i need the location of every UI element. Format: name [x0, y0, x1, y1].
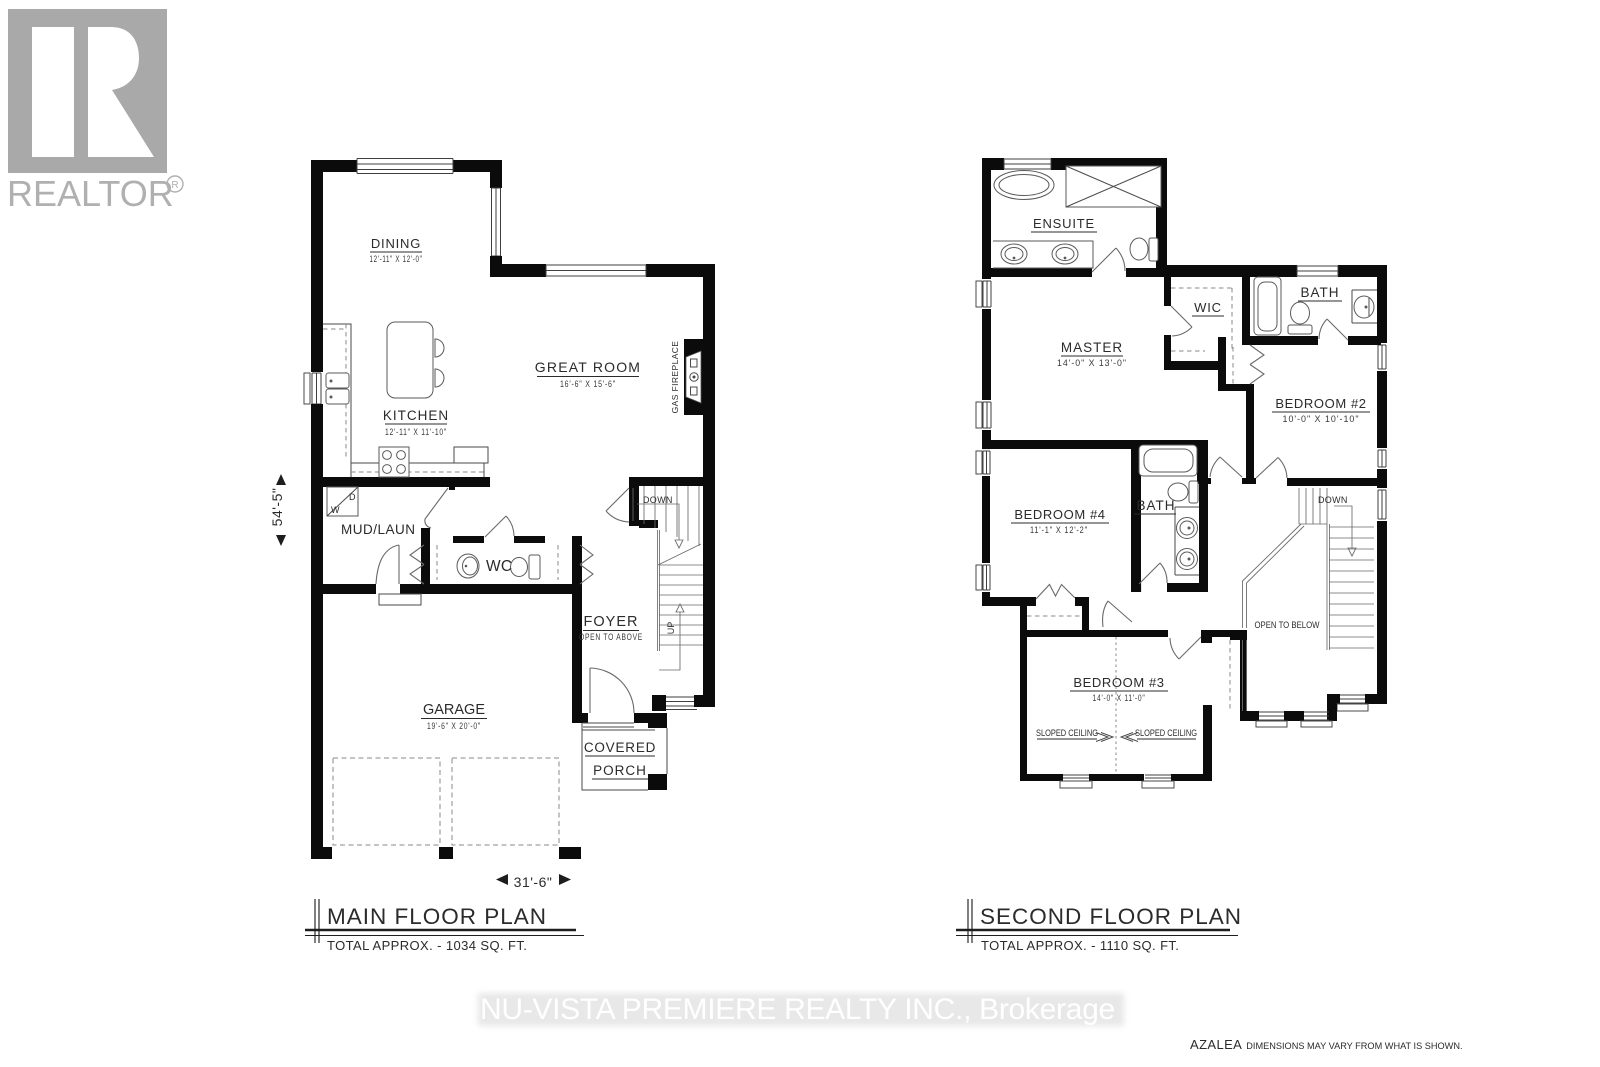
- svg-text:WIC: WIC: [1194, 300, 1222, 315]
- svg-text:16'-6" X 15'-6": 16'-6" X 15'-6": [560, 379, 616, 389]
- svg-text:54'-5": 54'-5": [269, 488, 285, 527]
- svg-text:11'-1" X 12'-2": 11'-1" X 12'-2": [1030, 525, 1088, 535]
- svg-text:GAS FIREPLACE: GAS FIREPLACE: [670, 341, 680, 414]
- svg-text:SECOND FLOOR PLAN: SECOND FLOOR PLAN: [980, 904, 1242, 929]
- svg-text:31'-6": 31'-6": [514, 874, 553, 890]
- svg-text:W: W: [331, 505, 340, 515]
- svg-text:FOYER: FOYER: [584, 614, 639, 630]
- svg-text:BATH: BATH: [1300, 285, 1339, 300]
- svg-text:D: D: [349, 492, 356, 502]
- svg-text:TOTAL APPROX. - 1110 SQ. FT.: TOTAL APPROX. - 1110 SQ. FT.: [981, 938, 1179, 953]
- svg-text:REALTOR: REALTOR: [7, 173, 174, 214]
- svg-text:TOTAL APPROX. - 1034 SQ. FT.: TOTAL APPROX. - 1034 SQ. FT.: [327, 938, 527, 953]
- svg-text:10'-0" X 10'-10": 10'-0" X 10'-10": [1283, 414, 1360, 424]
- svg-text:DINING: DINING: [371, 236, 421, 251]
- svg-text:BEDROOM #3: BEDROOM #3: [1073, 675, 1164, 690]
- svg-text:OPEN TO BELOW: OPEN TO BELOW: [1255, 620, 1320, 630]
- svg-text:ENSUITE: ENSUITE: [1033, 216, 1095, 231]
- svg-text:14'-0" X 11'-0": 14'-0" X 11'-0": [1093, 693, 1146, 703]
- svg-text:GARAGE: GARAGE: [423, 702, 485, 718]
- svg-text:12'-11" X 11'-10": 12'-11" X 11'-10": [385, 427, 447, 437]
- svg-text:BEDROOM #4: BEDROOM #4: [1014, 507, 1105, 522]
- svg-text:NU-VISTA PREMIERE REALTY INC.,: NU-VISTA PREMIERE REALTY INC., Brokerage: [480, 993, 1115, 1026]
- svg-text:GREAT ROOM: GREAT ROOM: [535, 359, 641, 375]
- svg-text:14'-0" X 13'-0": 14'-0" X 13'-0": [1057, 358, 1127, 368]
- svg-text:12'-11" X 12'-0": 12'-11" X 12'-0": [370, 254, 423, 264]
- svg-text:SLOPED CEILING: SLOPED CEILING: [1036, 728, 1098, 738]
- svg-text:R: R: [171, 180, 178, 191]
- svg-text:WC: WC: [486, 558, 512, 575]
- svg-text:BEDROOM #2: BEDROOM #2: [1275, 396, 1366, 411]
- svg-text:PORCH: PORCH: [593, 763, 647, 778]
- svg-text:MAIN FLOOR PLAN: MAIN FLOOR PLAN: [327, 904, 547, 929]
- svg-text:UP: UP: [666, 622, 676, 635]
- svg-text:BATH: BATH: [1136, 498, 1175, 513]
- svg-text:SLOPED CEILING: SLOPED CEILING: [1135, 728, 1197, 738]
- svg-text:DOWN: DOWN: [1318, 495, 1348, 505]
- svg-text:OPEN TO ABOVE: OPEN TO ABOVE: [579, 632, 643, 642]
- svg-text:KITCHEN: KITCHEN: [383, 408, 449, 423]
- svg-text:COVERED: COVERED: [584, 740, 656, 755]
- svg-text:19'-6" X 20'-0": 19'-6" X 20'-0": [427, 721, 481, 731]
- svg-text:MASTER: MASTER: [1061, 340, 1123, 355]
- svg-text:DOWN: DOWN: [643, 495, 673, 505]
- svg-text:MUD/LAUN: MUD/LAUN: [341, 522, 416, 537]
